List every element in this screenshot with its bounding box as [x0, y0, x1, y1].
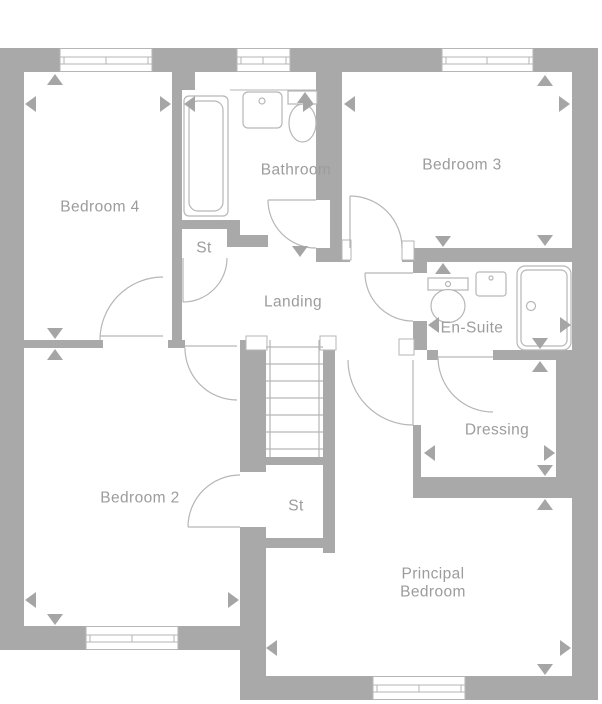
wall-left [0, 48, 24, 650]
label-bathroom: Bathroom [261, 162, 331, 179]
door-ensuite [365, 273, 413, 321]
label-storage-lower: St [288, 498, 304, 515]
room-labels: Bedroom 4 Bathroom Bedroom 3 St Landing … [60, 157, 529, 601]
window-principal [373, 677, 465, 700]
label-principal-line1: Principal [401, 566, 464, 583]
marker-down-icon [537, 465, 553, 476]
label-principal-line2: Bedroom [400, 584, 466, 601]
wall-bed4-bathroom [172, 72, 182, 340]
marker-left-icon [25, 96, 36, 112]
marker-up-icon [532, 361, 548, 372]
label-ensuite: En-Suite [441, 320, 504, 337]
label-landing: Landing [264, 294, 322, 311]
wall-bed4-bottom-b [168, 340, 185, 348]
marker-right-icon [228, 592, 239, 608]
marker-right-icon [544, 445, 555, 461]
wall-bed3-bottom-right [402, 248, 572, 262]
wall-dressing-top-a [427, 350, 438, 360]
wall-bed2-stairs-a [240, 340, 266, 472]
wall-dressing-top-b [493, 350, 572, 360]
marker-down-icon [537, 235, 553, 246]
washbasin-icon [476, 272, 506, 296]
door-dressing [438, 357, 493, 412]
marker-up-icon [537, 75, 553, 86]
floor-plan: Bedroom 4 Bathroom Bedroom 3 St Landing … [0, 0, 602, 704]
label-dressing: Dressing [465, 422, 529, 439]
marker-up-icon [435, 263, 451, 274]
door-principal [348, 360, 413, 425]
label-bedroom2: Bedroom 2 [100, 490, 179, 507]
marker-down-icon [47, 328, 63, 339]
window-bedroom2 [86, 627, 178, 650]
window-bedroom3 [442, 49, 533, 72]
wall-bathroom-corner-left [172, 72, 195, 90]
door-bedroom3 [350, 196, 402, 248]
wall-st-lower-bottom [240, 538, 335, 548]
marker-up-icon [47, 74, 63, 85]
marker-left-icon [344, 96, 355, 112]
label-storage-upper: St [196, 240, 212, 257]
door-storage-upper [183, 258, 227, 302]
jamb-stairs-left [246, 336, 267, 350]
marker-down-icon [292, 246, 308, 257]
wall-ensuite-left-a [413, 262, 427, 273]
marker-down-icon [435, 236, 451, 247]
door-bathroom [268, 200, 316, 248]
wall-right [572, 48, 598, 700]
marker-left-icon [424, 445, 435, 461]
marker-down-icon [47, 614, 63, 625]
fixtures [184, 90, 571, 350]
marker-right-icon [560, 640, 571, 656]
marker-left-icon [25, 592, 36, 608]
walls [0, 48, 598, 700]
wall-stairs-bottom [252, 457, 335, 465]
window-bathroom [237, 49, 290, 72]
marker-down-icon [537, 664, 553, 675]
jamb-stairs-right [320, 336, 336, 350]
door-bedroom4 [100, 277, 163, 340]
wall-bed3-left-lower [330, 200, 342, 248]
label-bedroom4: Bedroom 4 [60, 199, 139, 216]
washbasin-icon [243, 92, 282, 128]
shower-icon [517, 266, 571, 350]
wall-st-upper-right [227, 220, 240, 247]
wc-icon [428, 278, 468, 323]
wall-stairs-right [323, 340, 335, 553]
bath-icon [184, 96, 228, 216]
windows [60, 49, 533, 700]
marker-right-icon [160, 96, 171, 112]
wall-bathroom-bed3 [316, 72, 342, 200]
wall-bed4-bottom-a [24, 340, 103, 348]
wall-landing-top [240, 235, 268, 247]
staircase [266, 340, 323, 457]
marker-right-icon [559, 96, 570, 112]
wall-right-dressing-pad [556, 360, 572, 498]
label-bedroom3: Bedroom 3 [422, 157, 501, 174]
wall-dressing-bottom [413, 477, 556, 498]
wall-ensuite-left-b [413, 321, 427, 350]
window-bedroom4 [60, 49, 152, 72]
marker-left-icon [428, 317, 439, 333]
jamb-principal-door [399, 339, 414, 355]
marker-up-icon [537, 499, 553, 510]
marker-left-icon [266, 640, 277, 656]
door-storage-lower [188, 475, 240, 527]
floor-plan-drawing: Bedroom 4 Bathroom Bedroom 3 St Landing … [0, 0, 602, 704]
marker-up-icon [47, 349, 63, 360]
jamb-bed3-right [402, 241, 414, 260]
door-bedroom2 [185, 346, 237, 400]
